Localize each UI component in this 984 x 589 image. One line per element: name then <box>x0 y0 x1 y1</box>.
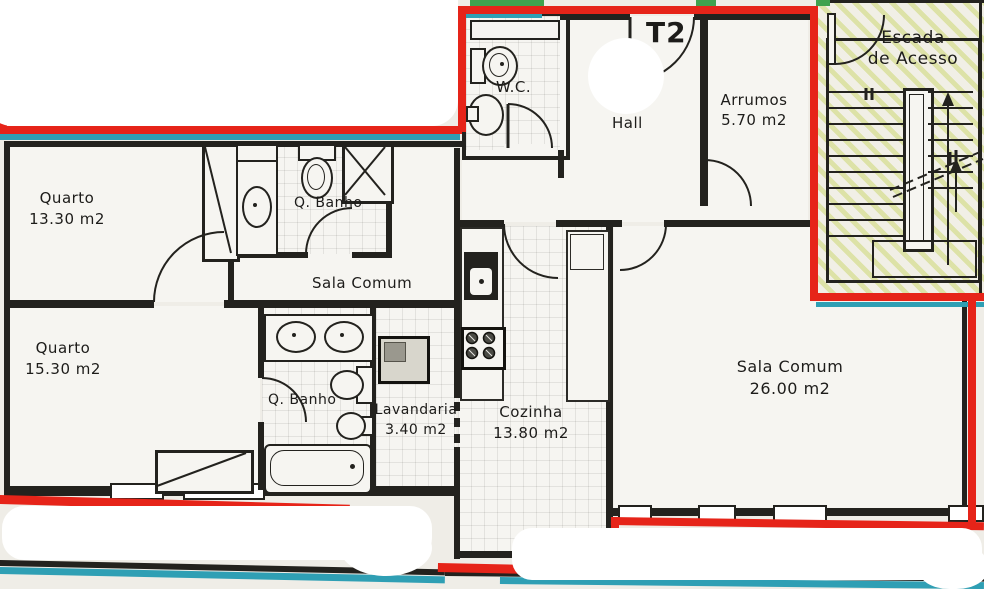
toilet-bowl-inner <box>307 164 325 190</box>
whiteout-bottom-right-bulge <box>918 545 984 589</box>
stair-newel-inner <box>909 94 924 242</box>
room-label-lavandaria: Lavandaria 3.40 m2 <box>372 400 460 440</box>
window-sill <box>948 505 984 522</box>
wall-segment <box>694 14 812 20</box>
room-label-qbanho2: Q. Banho <box>268 392 336 408</box>
room-label-qbanho1: Q. Banho <box>294 195 362 211</box>
closet <box>202 144 240 262</box>
whiteout-bottom-right <box>512 528 982 580</box>
sink-drain <box>253 203 257 207</box>
stairwell-label-line1: Escada <box>858 28 968 49</box>
room-label-sala: Sala Comum 26.00 m2 <box>720 356 860 400</box>
wc-door-gap <box>504 144 552 154</box>
red-boundary <box>968 293 976 525</box>
room-area: 13.30 m2 <box>12 209 122 230</box>
wall-segment <box>962 296 967 517</box>
wall-segment <box>560 14 630 20</box>
room-area: 5.70 m2 <box>700 110 808 130</box>
teal-boundary <box>816 302 984 307</box>
room-label-hall: Hall <box>612 114 643 132</box>
room-label-sala-mid: Sala Comum <box>312 274 412 292</box>
wall-segment <box>4 141 10 493</box>
wall-segment <box>456 220 504 227</box>
sink-drain <box>292 333 296 337</box>
stair-top-line <box>820 0 984 3</box>
room-name: Quarto <box>12 188 122 209</box>
room-area: 26.00 m2 <box>720 378 860 400</box>
toilet-bowl-inner <box>489 53 509 77</box>
room-name: Lavandaria <box>372 400 460 420</box>
vanity-sink <box>242 186 272 228</box>
room-label-quarto2: Quarto 15.30 m2 <box>8 338 118 380</box>
stairwell-label: Escada de Acesso <box>858 28 968 70</box>
lavandaria-floor <box>376 306 456 488</box>
whiteout-bottom-left-bulge <box>340 520 432 576</box>
wall-segment <box>558 150 564 178</box>
stairwell-label-line2: de Acesso <box>858 49 968 70</box>
whiteout-hall-circle <box>588 38 664 114</box>
red-boundary <box>458 6 818 14</box>
room-label-cozinha: Cozinha 13.80 m2 <box>472 402 590 444</box>
kitchen-sink-drain <box>479 279 484 284</box>
washing-machine-detail <box>384 342 406 362</box>
whiteout-top-left <box>0 0 458 126</box>
room-area: 3.40 m2 <box>372 420 460 440</box>
room-name: Cozinha <box>472 402 590 423</box>
bidet-bowl <box>336 412 366 440</box>
red-boundary <box>458 6 466 132</box>
wall-segment <box>4 300 154 308</box>
closet <box>155 450 254 494</box>
wall-segment <box>454 447 460 559</box>
red-boundary <box>810 6 818 301</box>
wall-segment <box>556 220 622 227</box>
red-boundary <box>0 126 462 134</box>
page-edge-line <box>979 0 982 300</box>
room-label-quarto1: Quarto 13.30 m2 <box>12 188 122 230</box>
room-area: 15.30 m2 <box>8 359 118 380</box>
wc-sink-tap <box>466 106 479 122</box>
green-mark <box>816 0 830 6</box>
wall-segment <box>664 220 812 227</box>
room-name: Sala Comum <box>720 356 860 378</box>
room-label-arrumos: Arrumos 5.70 m2 <box>700 90 808 130</box>
floor-plan: T2 Escada de Acesso Arrumos 5.70 m2 Hall… <box>0 0 984 589</box>
stove <box>461 327 506 370</box>
kitchen-cabinet <box>570 234 604 270</box>
room-label-wc: W.C. <box>496 78 531 96</box>
stair-landing <box>872 240 977 278</box>
room-name: Arrumos <box>700 90 808 110</box>
sink-drain <box>340 333 344 337</box>
teal-boundary <box>0 134 460 140</box>
vanity-sink <box>324 321 364 353</box>
room-name: Quarto <box>8 338 118 359</box>
bathtub-drain <box>350 464 355 469</box>
type-badge: T2 <box>646 16 687 49</box>
vanity-sink <box>276 321 316 353</box>
room-area: 13.80 m2 <box>472 423 590 444</box>
toilet-drain <box>500 62 504 66</box>
wc-shelf <box>470 20 560 40</box>
red-boundary <box>810 293 984 301</box>
